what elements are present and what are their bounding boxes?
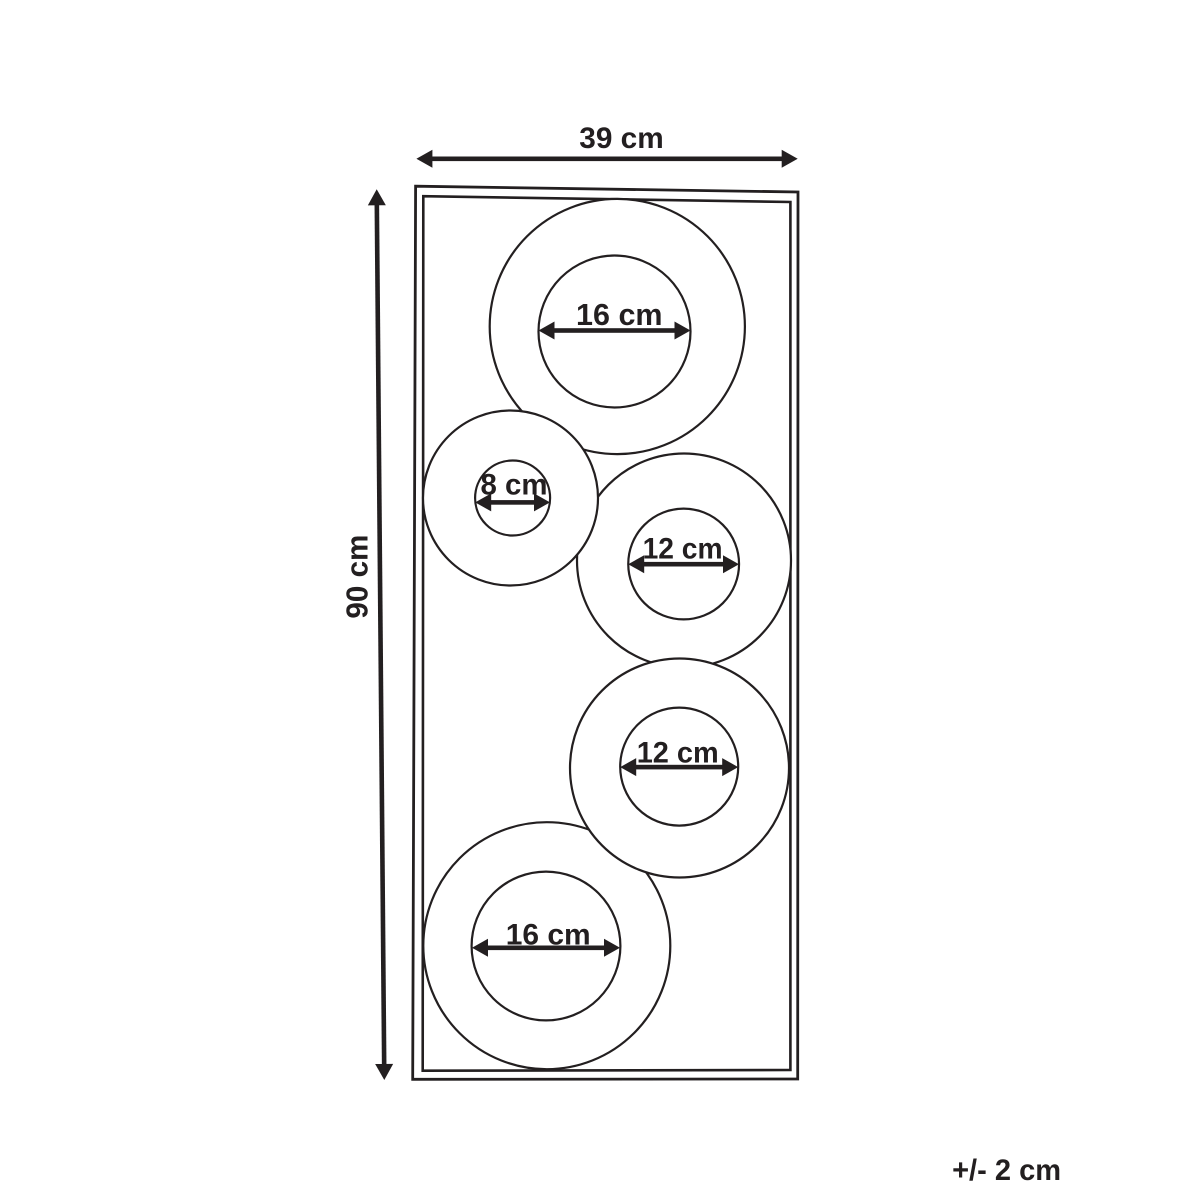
svg-text:16 cm: 16 cm [576, 297, 663, 332]
svg-text:39 cm: 39 cm [579, 122, 664, 155]
svg-text:90 cm: 90 cm [340, 535, 375, 619]
svg-text:8 cm: 8 cm [481, 469, 548, 502]
svg-text:16 cm: 16 cm [506, 918, 591, 951]
svg-text:+/- 2 cm: +/- 2 cm [952, 1154, 1061, 1187]
svg-text:12 cm: 12 cm [643, 532, 723, 565]
svg-text:12 cm: 12 cm [637, 737, 719, 770]
